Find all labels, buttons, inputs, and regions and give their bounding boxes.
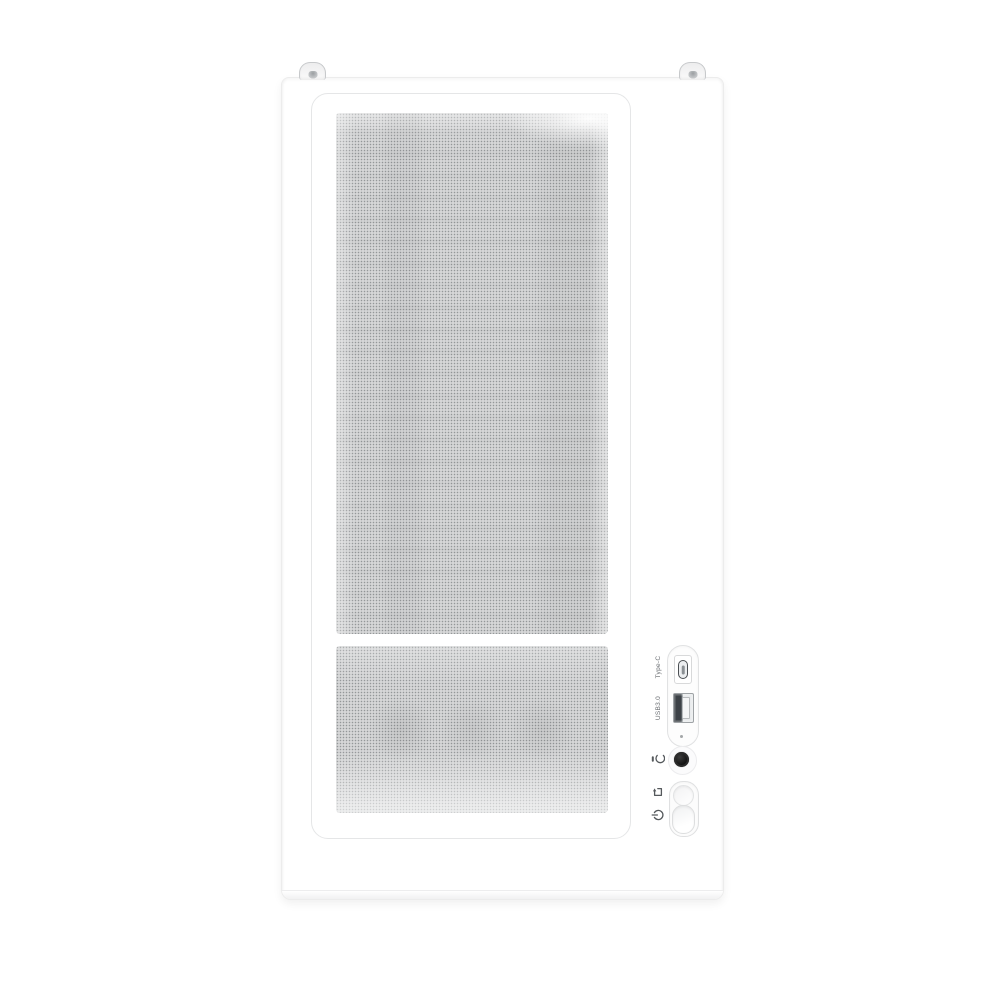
usb-port-label: USB3.0 (656, 696, 663, 720)
usb-typec-port (678, 660, 688, 679)
headphone-mic-icon (651, 752, 665, 766)
case-mounting-tab-right (679, 62, 706, 80)
led-indicator (680, 735, 683, 738)
reset-button (673, 785, 694, 806)
audio-jack (674, 752, 689, 767)
power-button (672, 805, 695, 834)
power-icon (651, 808, 665, 822)
mesh-panel-upper (336, 113, 608, 634)
typec-port-label: Type-C (656, 656, 663, 679)
case-bottom-lip (282, 890, 723, 899)
usb-a-3-0-port (673, 693, 694, 723)
mesh-panel-lower (336, 646, 608, 813)
reset-icon (651, 785, 665, 799)
case-mounting-tab-left (299, 62, 326, 80)
